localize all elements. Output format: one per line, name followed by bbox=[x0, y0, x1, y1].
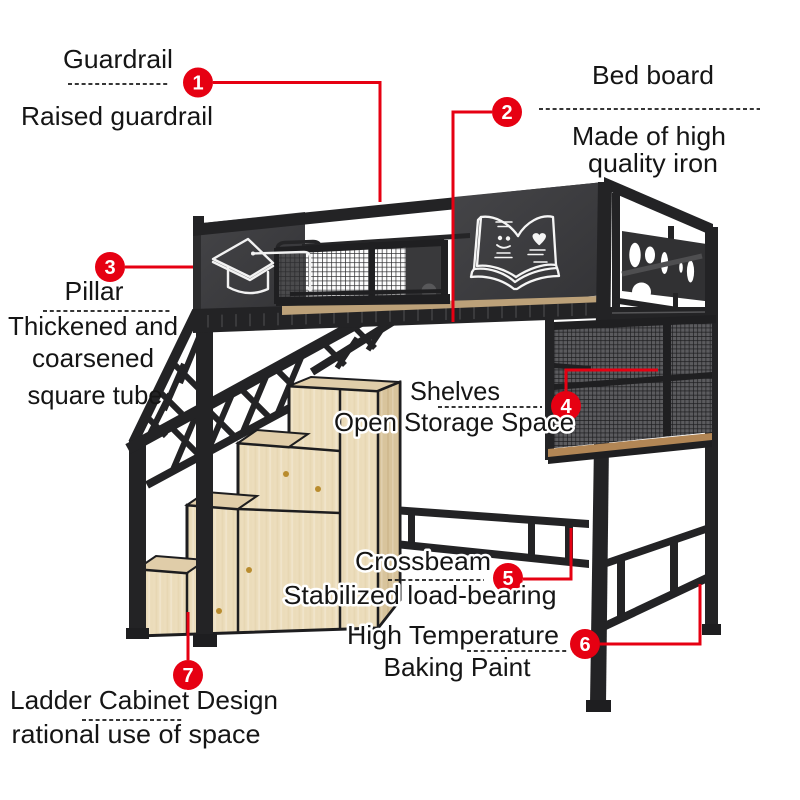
svg-text:Baking Paint: Baking Paint bbox=[384, 652, 532, 682]
svg-text:1: 1 bbox=[192, 73, 203, 95]
svg-text:Shelves: Shelves bbox=[410, 376, 500, 406]
svg-text:6: 6 bbox=[579, 634, 590, 656]
svg-text:7: 7 bbox=[182, 665, 193, 687]
svg-text:Crossbeam: Crossbeam bbox=[355, 546, 491, 576]
svg-text:Pillar: Pillar bbox=[65, 276, 124, 306]
svg-text:square tube: square tube bbox=[28, 380, 163, 410]
svg-text:Guardrail: Guardrail bbox=[63, 44, 173, 74]
svg-text:Raised guardrail: Raised guardrail bbox=[21, 101, 213, 131]
svg-text:Ladder Cabinet Design: Ladder Cabinet Design bbox=[10, 685, 278, 715]
svg-text:Made of high: Made of high bbox=[572, 121, 726, 151]
svg-text:Bed board: Bed board bbox=[592, 60, 714, 90]
svg-text:Stabilized load-bearing: Stabilized load-bearing bbox=[284, 580, 557, 610]
svg-text:rational use of space: rational use of space bbox=[12, 719, 261, 749]
svg-text:Open Storage Space: Open Storage Space bbox=[334, 407, 574, 437]
svg-text:quality iron: quality iron bbox=[588, 148, 718, 178]
svg-text:Thickened and: Thickened and bbox=[8, 311, 178, 341]
svg-text:High Temperature: High Temperature bbox=[347, 620, 559, 650]
svg-text:2: 2 bbox=[501, 102, 512, 124]
svg-text:coarsened: coarsened bbox=[32, 343, 154, 373]
